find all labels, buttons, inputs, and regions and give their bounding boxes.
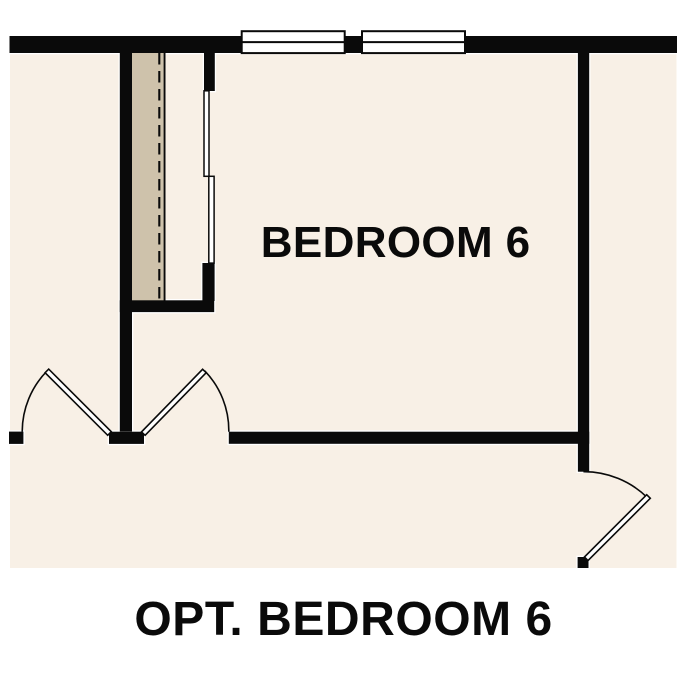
svg-text:OPT. BEDROOM 6: OPT. BEDROOM 6 (134, 593, 552, 646)
svg-text:BEDROOM 6: BEDROOM 6 (261, 218, 531, 267)
